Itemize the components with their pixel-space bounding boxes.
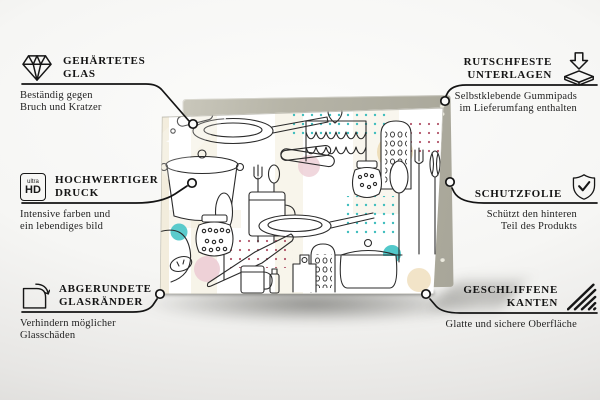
glass-board	[157, 104, 444, 295]
title-line: GEHÄRTETES	[63, 55, 145, 68]
title-line: HOCHWERTIGER	[55, 174, 158, 187]
ultra-hd-icon: ultra HD	[20, 173, 46, 201]
desc-line: Verhindern möglicher	[20, 318, 170, 330]
title-line: GESCHLIFFENE	[463, 284, 558, 297]
title-line: SCHUTZFOLIE	[475, 188, 562, 201]
title-line: KANTEN	[463, 297, 558, 310]
desc-line: Teil des Produkts	[437, 221, 577, 233]
feature-description: Intensive farben und ein lebendiges bild	[20, 209, 170, 232]
desc-line: Selbstklebende Gummipads	[437, 91, 577, 103]
feature-description: Schützt den hinteren Teil des Produkts	[437, 209, 597, 232]
feature-head: SCHUTZFOLIE	[437, 171, 597, 203]
rounded-corner-icon	[20, 282, 50, 311]
feature-hq-print: ultra HD HOCHWERTIGER DRUCK Intensive fa…	[20, 171, 170, 232]
feature-head: ultra HD HOCHWERTIGER DRUCK	[20, 171, 170, 203]
feature-title: GESCHLIFFENE KANTEN	[463, 284, 558, 310]
feature-antislip-pads: RUTSCHFESTE UNTERLAGEN Selbstklebende Gu…	[437, 53, 597, 114]
feature-head: GESCHLIFFENE KANTEN	[437, 281, 597, 313]
product-infographic: GEHÄRTETES GLAS Beständig gegen Bruch un…	[0, 0, 600, 400]
feature-title: RUTSCHFESTE UNTERLAGEN	[464, 56, 552, 82]
desc-line: Beständig gegen	[20, 90, 170, 102]
desc-line: ein lebendiges bild	[20, 221, 170, 233]
feature-description: Glatte und sichere Oberfläche	[437, 319, 597, 331]
feature-description: Verhindern möglicher Glasschäden	[20, 318, 170, 341]
desc-line: Intensive farben und	[20, 209, 170, 221]
feature-tempered-glass: GEHÄRTETES GLAS Beständig gegen Bruch un…	[20, 52, 170, 113]
rubber-pads-icon	[561, 51, 597, 87]
doodle-pattern	[157, 104, 444, 295]
desc-line: Bruch und Kratzer	[20, 102, 170, 114]
feature-rounded-edges: ABGERUNDETE GLASRÄNDER Verhindern möglic…	[20, 280, 170, 341]
doodle-jar-2	[353, 161, 382, 198]
desc-line: Schützt den hinteren	[437, 209, 577, 221]
feature-head: RUTSCHFESTE UNTERLAGEN	[437, 53, 597, 85]
title-line: GLAS	[63, 68, 145, 81]
title-line: UNTERLAGEN	[464, 69, 552, 82]
title-line: DRUCK	[55, 187, 158, 200]
feature-title: ABGERUNDETE GLASRÄNDER	[59, 283, 152, 309]
desc-line: im Lieferumfang enthalten	[437, 103, 577, 115]
feature-ground-edges: GESCHLIFFENE KANTEN Glatte und sichere O…	[437, 281, 597, 331]
feature-title: GEHÄRTETES GLAS	[63, 55, 145, 81]
feature-head: GEHÄRTETES GLAS	[20, 52, 170, 84]
desc-line: Glatte und sichere Oberfläche	[437, 319, 577, 331]
feature-head: ABGERUNDETE GLASRÄNDER	[20, 280, 170, 312]
pinhole	[440, 257, 445, 262]
ultra-hd-label-big: HD	[25, 185, 41, 196]
feature-protective-film: SCHUTZFOLIE Schützt den hinteren Teil de…	[437, 171, 597, 232]
title-line: RUTSCHFESTE	[464, 56, 552, 69]
feature-description: Beständig gegen Bruch und Kratzer	[20, 90, 170, 113]
feature-title: SCHUTZFOLIE	[475, 188, 562, 201]
feature-description: Selbstklebende Gummipads im Lieferumfang…	[437, 91, 597, 114]
desc-line: Glasschäden	[20, 330, 170, 342]
shield-check-icon	[571, 172, 597, 202]
title-line: GLASRÄNDER	[59, 296, 152, 309]
title-line: ABGERUNDETE	[59, 283, 152, 296]
feature-title: HOCHWERTIGER DRUCK	[55, 174, 158, 200]
ground-edges-icon	[567, 283, 597, 311]
diamond-icon	[20, 53, 54, 83]
